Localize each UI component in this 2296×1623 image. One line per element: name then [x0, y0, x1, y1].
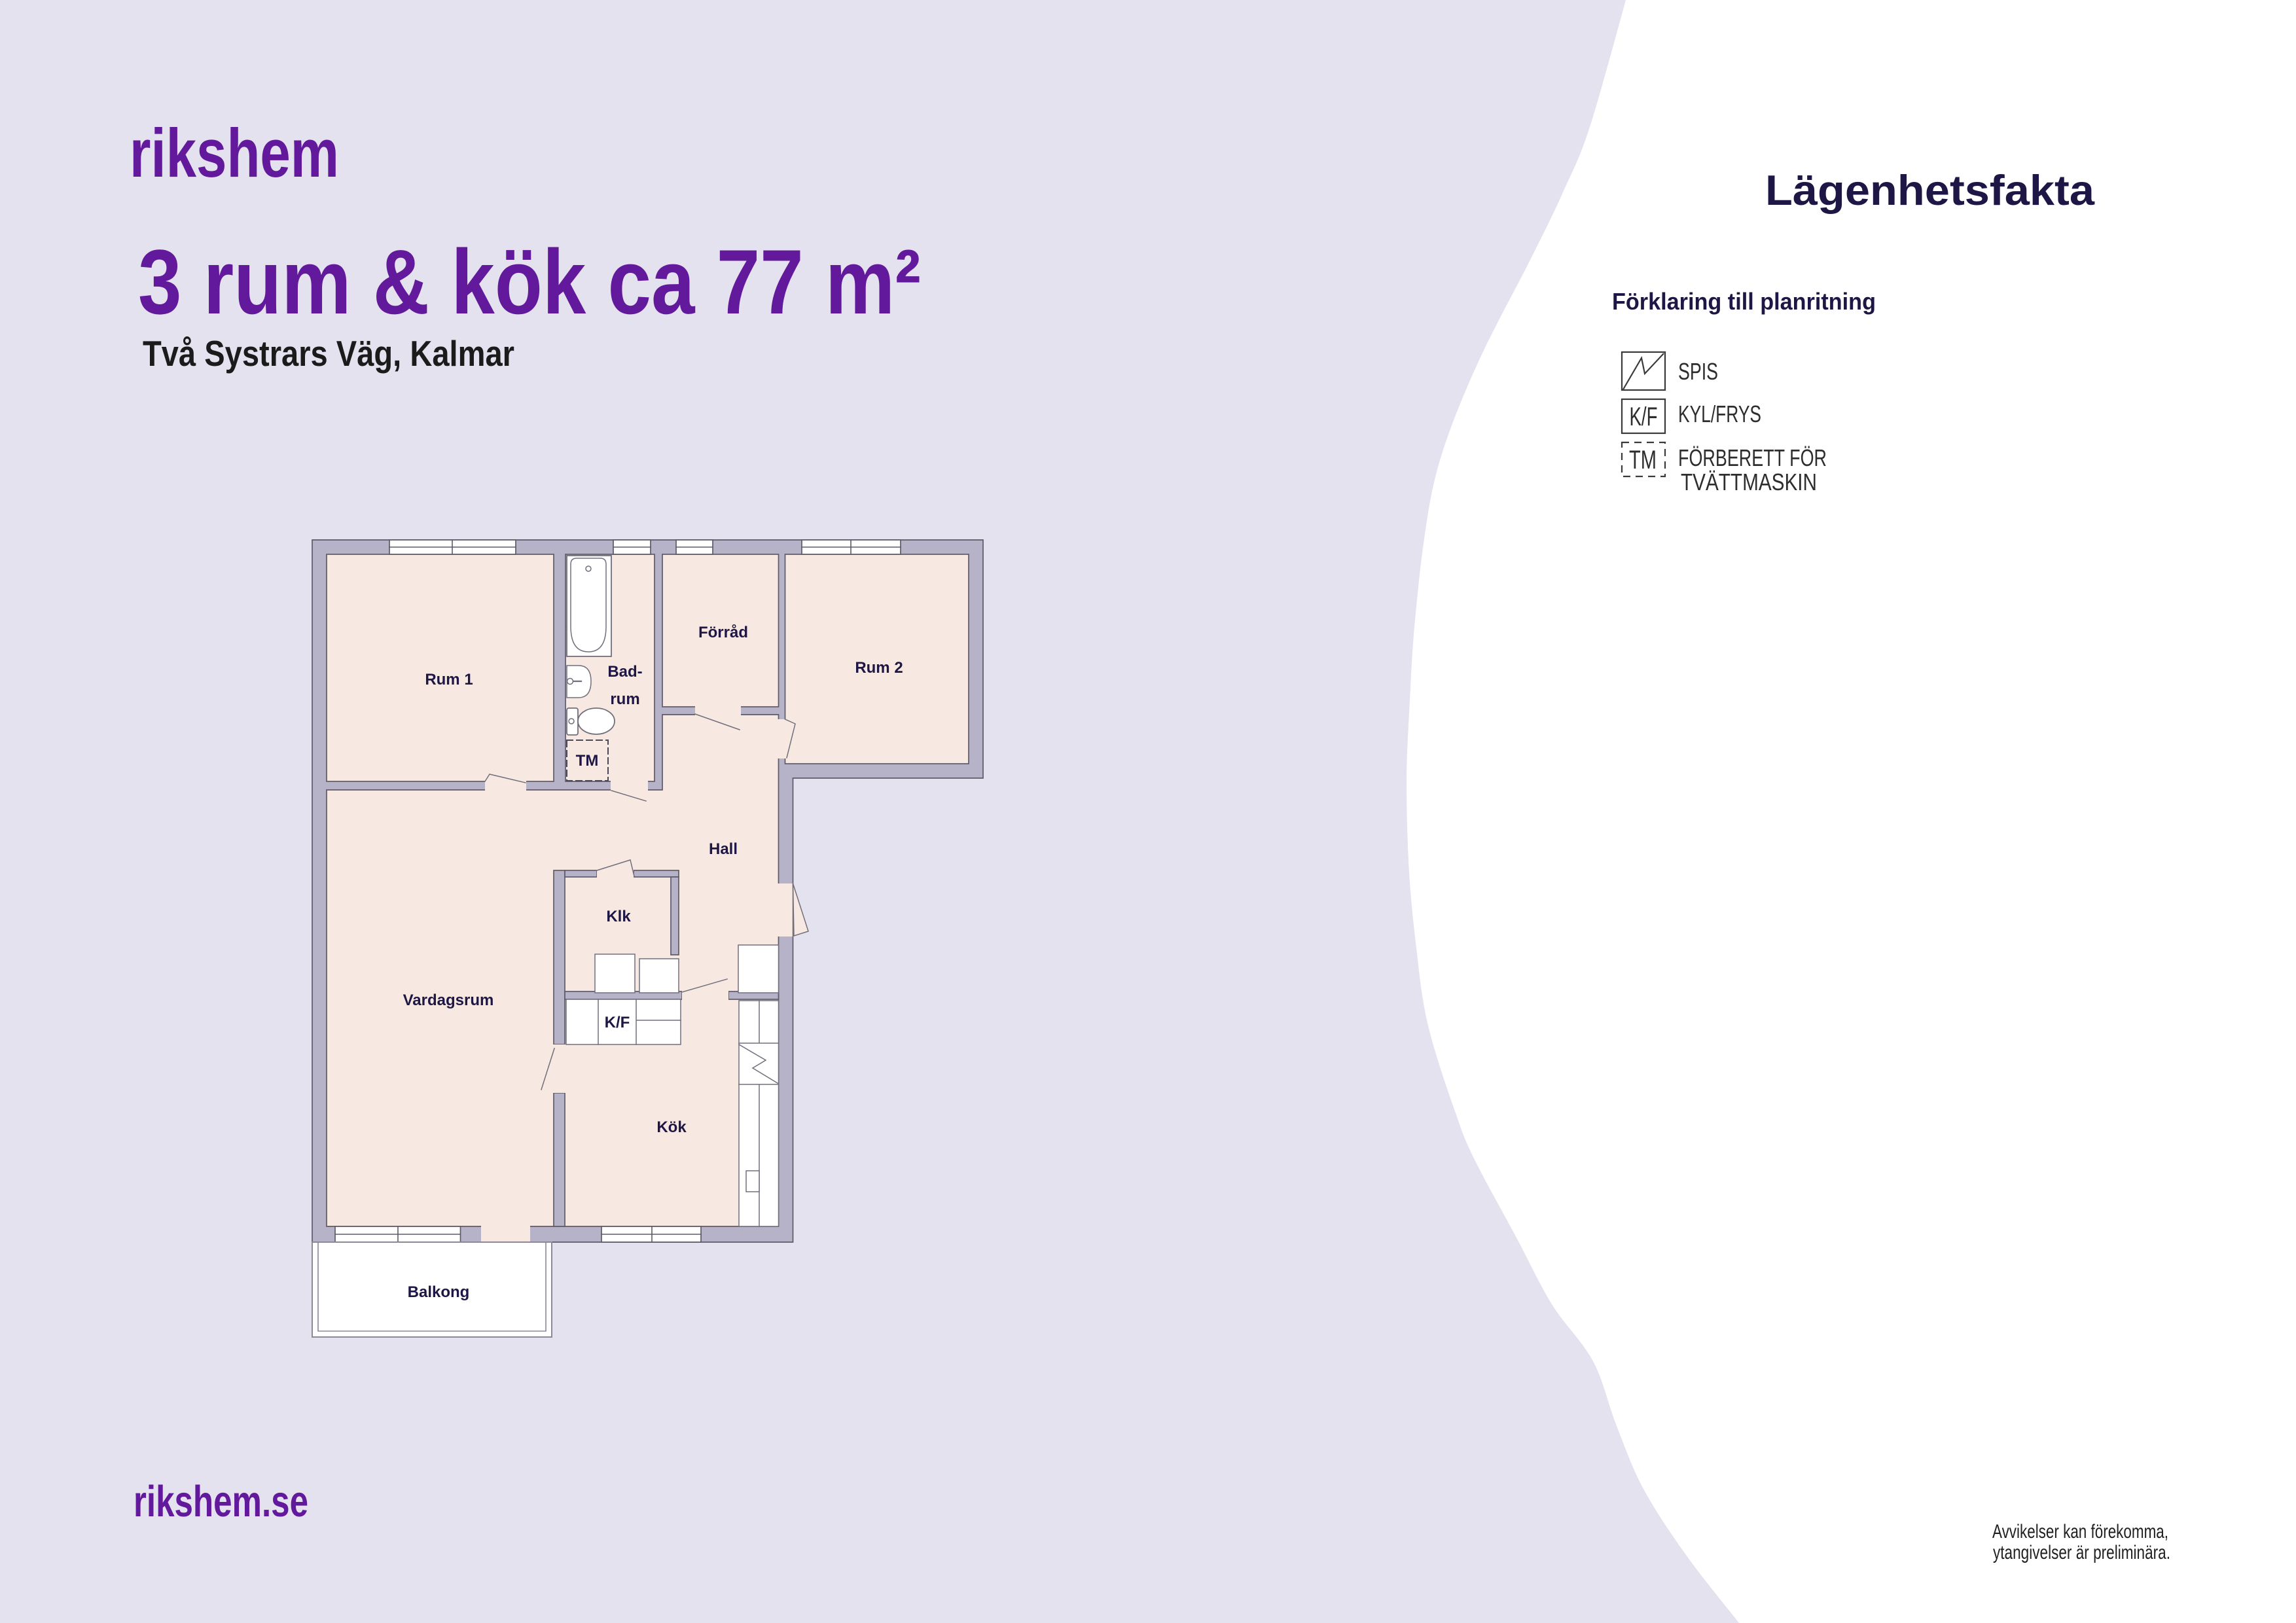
svg-text:K/F: K/F: [1630, 402, 1658, 431]
svg-text:rikshem.se: rikshem.se: [134, 1477, 308, 1526]
svg-text:Avvikelser kan förekomma,: Avvikelser kan förekomma,: [1992, 1521, 2168, 1543]
svg-text:Rum 1: Rum 1: [425, 671, 473, 688]
svg-text:Hall: Hall: [709, 840, 738, 858]
svg-text:KYL/FRYS: KYL/FRYS: [1678, 401, 1761, 427]
svg-text:Kök: Kök: [656, 1118, 687, 1136]
svg-text:Rum 2: Rum 2: [855, 659, 903, 677]
svg-text:Bad-: Bad-: [607, 663, 642, 681]
svg-text:K/F: K/F: [605, 1014, 630, 1031]
svg-text:TVÄTTMASKIN: TVÄTTMASKIN: [1681, 469, 1817, 495]
svg-text:ytangivelser är preliminära.: ytangivelser är preliminära.: [1993, 1542, 2170, 1563]
svg-text:rikshem: rikshem: [130, 115, 339, 192]
svg-text:Förklaring till planritning: Förklaring till planritning: [1612, 288, 1876, 315]
svg-text:3 rum & kök ca 77 m²: 3 rum & kök ca 77 m²: [138, 230, 921, 333]
svg-text:Klk: Klk: [606, 908, 631, 925]
svg-text:SPIS: SPIS: [1678, 358, 1718, 385]
svg-text:TM: TM: [576, 752, 599, 770]
svg-text:Två Systrars Väg, Kalmar: Två Systrars Väg, Kalmar: [143, 333, 514, 374]
svg-text:Balkong: Balkong: [408, 1283, 470, 1301]
svg-text:FÖRBERETT FÖR: FÖRBERETT FÖR: [1678, 444, 1827, 471]
svg-text:TM: TM: [1629, 446, 1657, 474]
svg-text:Vardagsrum: Vardagsrum: [403, 991, 494, 1009]
svg-text:rum: rum: [610, 690, 639, 708]
svg-text:Lägenhetsfakta: Lägenhetsfakta: [1765, 166, 2095, 214]
svg-text:Förråd: Förråd: [698, 624, 748, 641]
